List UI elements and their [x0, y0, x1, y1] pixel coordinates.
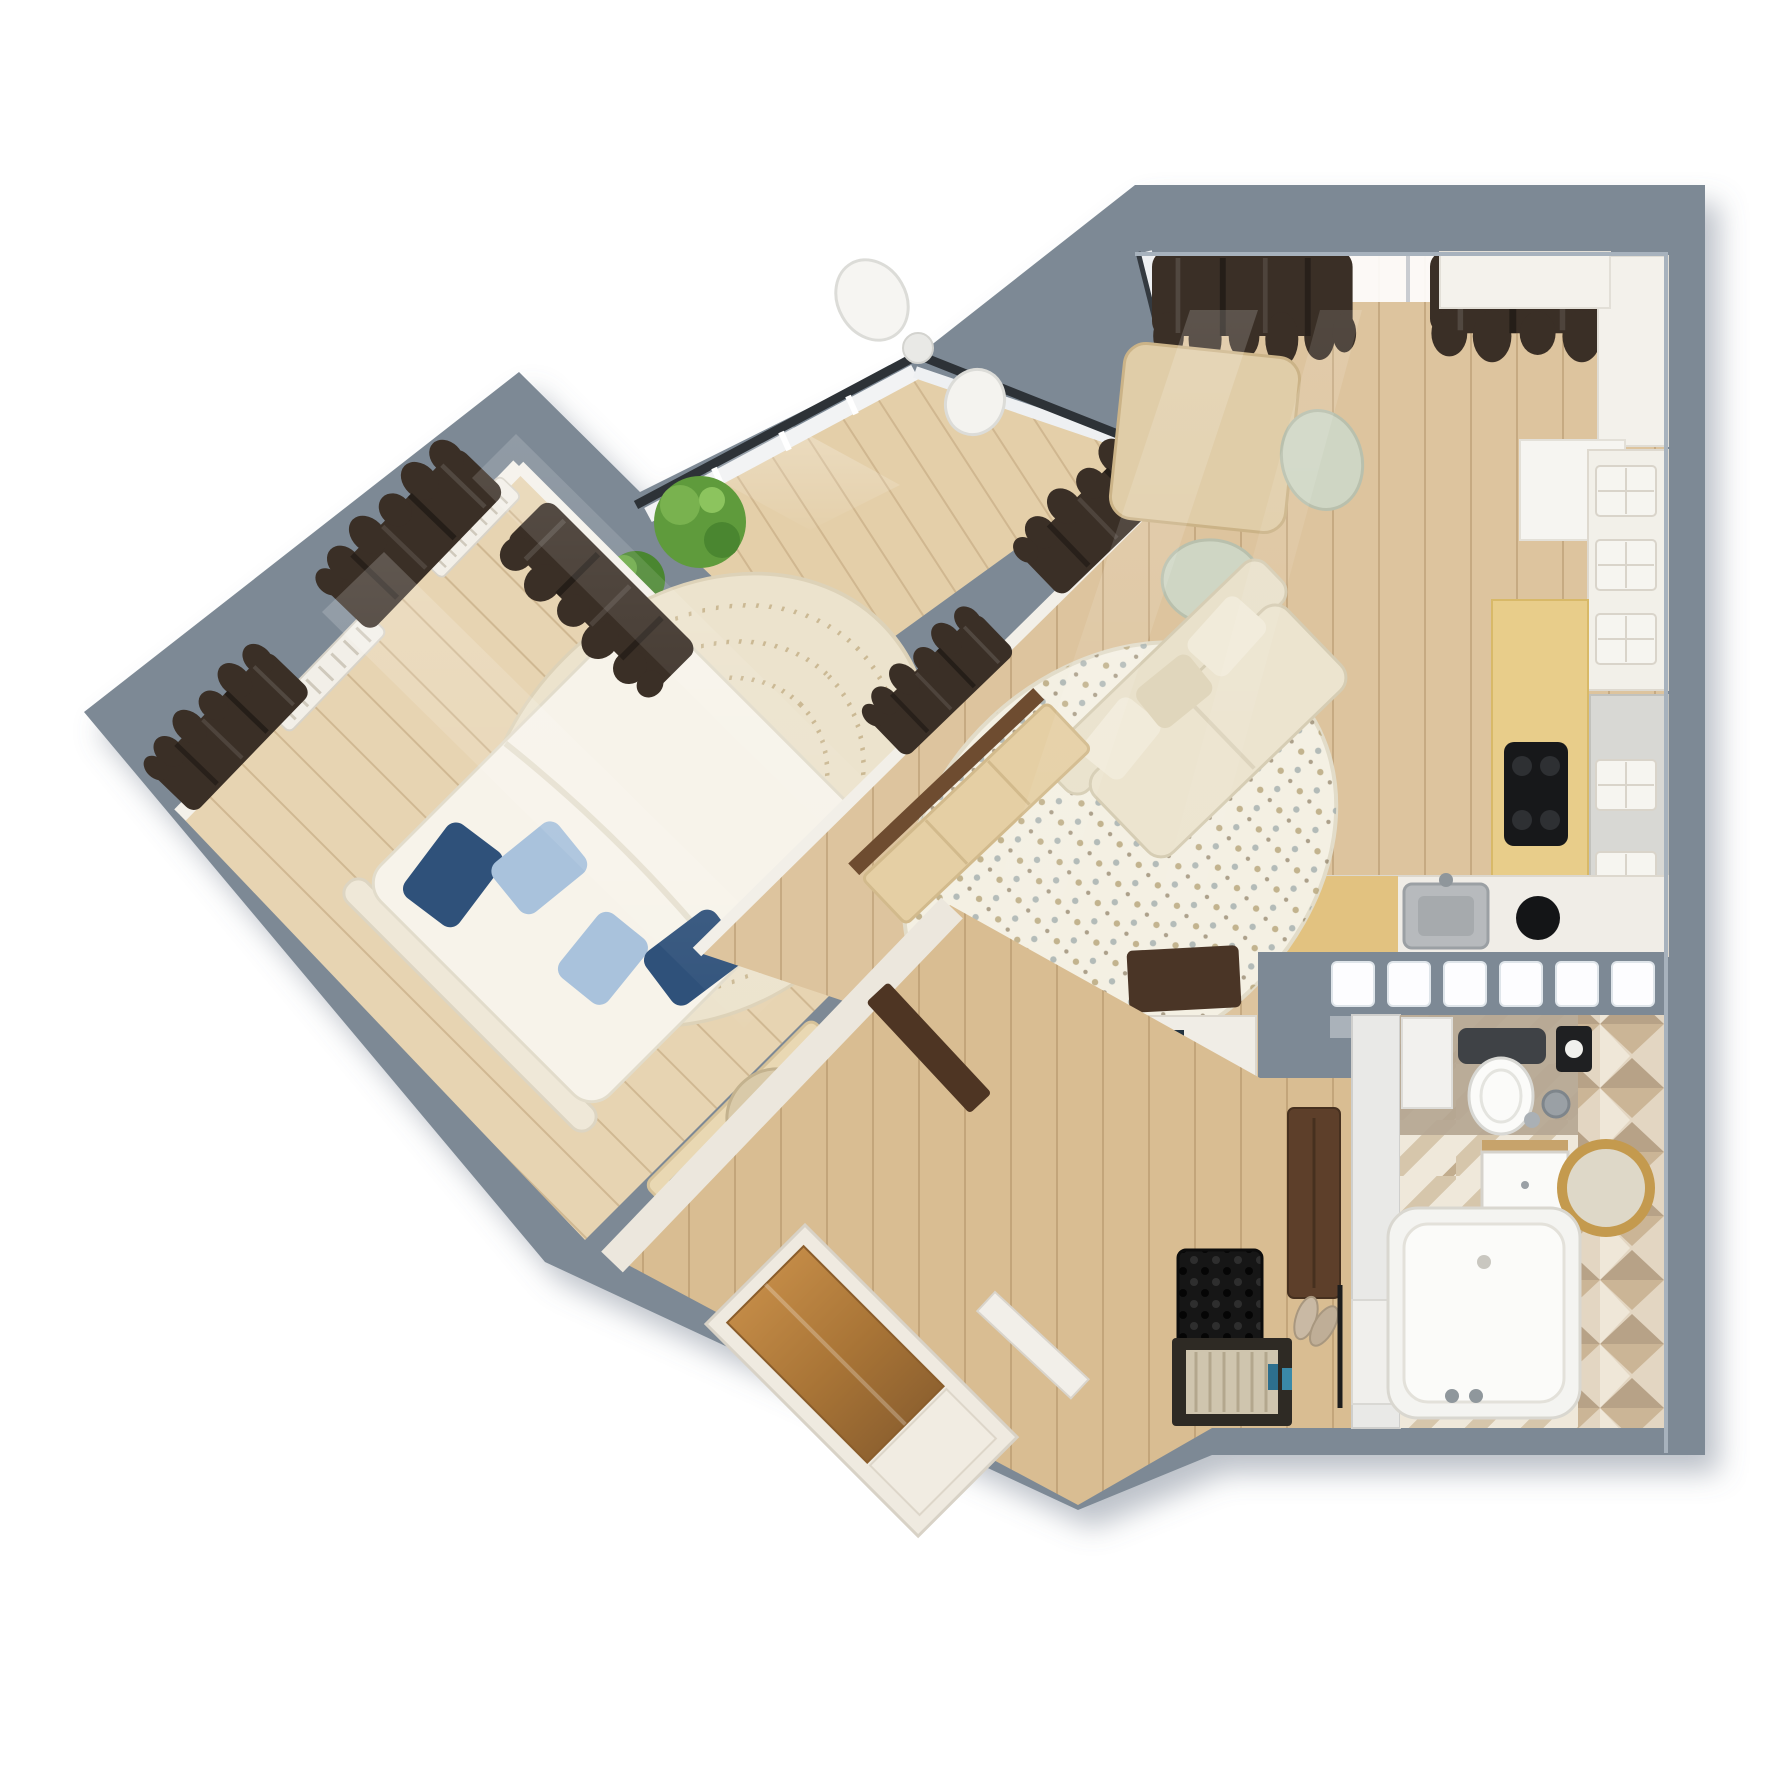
cabinet-glass-door-1	[1596, 466, 1656, 516]
balcony-side-table	[903, 333, 933, 363]
cabinet-glass-door-3	[1596, 614, 1656, 664]
floor-plan-render	[0, 0, 1776, 1776]
floor-plan-stage	[0, 0, 1776, 1776]
shoe-grid-mat	[1178, 1250, 1262, 1346]
paper-roll	[1565, 1040, 1583, 1058]
balcony-plant-large	[654, 476, 746, 568]
tub-tap-1	[1445, 1389, 1459, 1403]
kitchen-upper-cabinet	[1440, 252, 1610, 308]
mixer-handle	[1524, 1112, 1540, 1128]
cabinet-glass-door-4	[1596, 760, 1656, 810]
hall-bottle-1	[1268, 1364, 1278, 1390]
shower-mixer	[1543, 1091, 1569, 1117]
round-mirror	[1562, 1144, 1650, 1232]
vanity-cabinet	[1482, 1140, 1568, 1218]
tub-tap-2	[1469, 1389, 1483, 1403]
living-doormat	[1126, 945, 1241, 1013]
sink-basin	[1418, 896, 1474, 936]
black-vessel	[1516, 896, 1560, 940]
tub-drain	[1477, 1255, 1491, 1269]
cabinet-glass-door-2	[1596, 540, 1656, 590]
hall-bottle-2	[1282, 1368, 1292, 1390]
bathroom-niche	[1402, 1018, 1452, 1108]
cooktop	[1504, 742, 1568, 846]
bathroom	[1352, 1015, 1668, 1428]
bathtub	[1388, 1208, 1580, 1418]
sink-faucet	[1439, 873, 1453, 887]
